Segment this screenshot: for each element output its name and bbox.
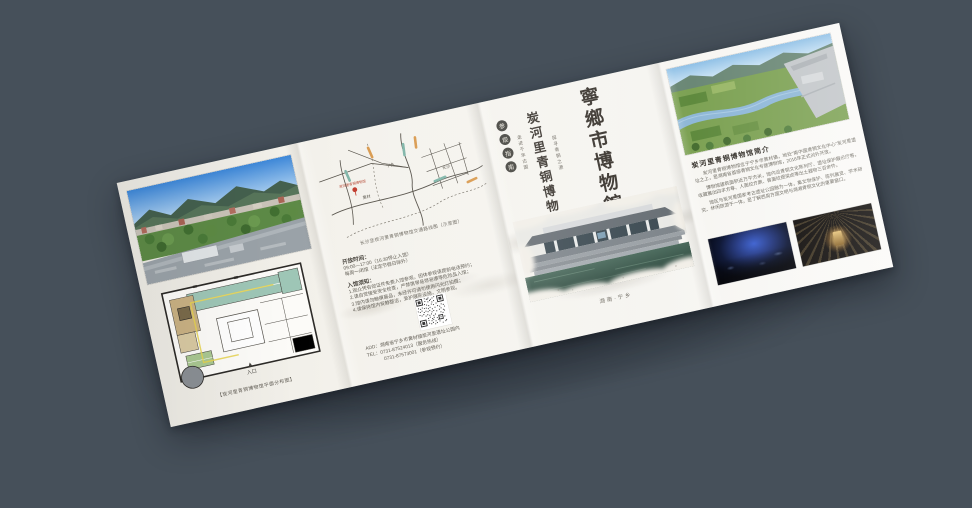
badge-char-3: 指: [501, 147, 514, 160]
map-pin-label: 炭河里青铜博物馆: [339, 178, 367, 189]
qr-code: [414, 293, 452, 331]
badge-char-1: 参: [495, 119, 508, 132]
visitor-guide-badge: 参 观 指 南: [495, 119, 517, 173]
river-aerial-photo: [666, 33, 849, 155]
intro-paragraphs: 炭河里青铜博物馆位于宁乡市黄材镇，地处“南中国青铜文化中心”炭河里遗址之上，是湖…: [693, 137, 865, 217]
map-town-ningxiang: 宁乡: [386, 161, 395, 169]
hand-drawn-map: 炭河里青铜博物馆 黄材 宁乡 长沙: [307, 112, 495, 246]
floor-plan: 入口 【炭河里青铜博物馆平面分布图】: [157, 258, 331, 407]
badge-char-2: 观: [498, 133, 511, 146]
map-town-huangcai: 黄材: [362, 193, 371, 201]
map-town-changsha: 长沙: [441, 163, 450, 171]
bronze-vessel-icon: [832, 230, 844, 246]
badge-char-4: 南: [504, 160, 517, 173]
exhibit-hall-photo: [708, 222, 796, 285]
map-pin-icon: [352, 187, 358, 193]
floorplan-entrance-label: 入口: [246, 368, 257, 376]
exhibit-photos: [708, 203, 881, 285]
bronze-artifact-photo: [793, 203, 881, 266]
